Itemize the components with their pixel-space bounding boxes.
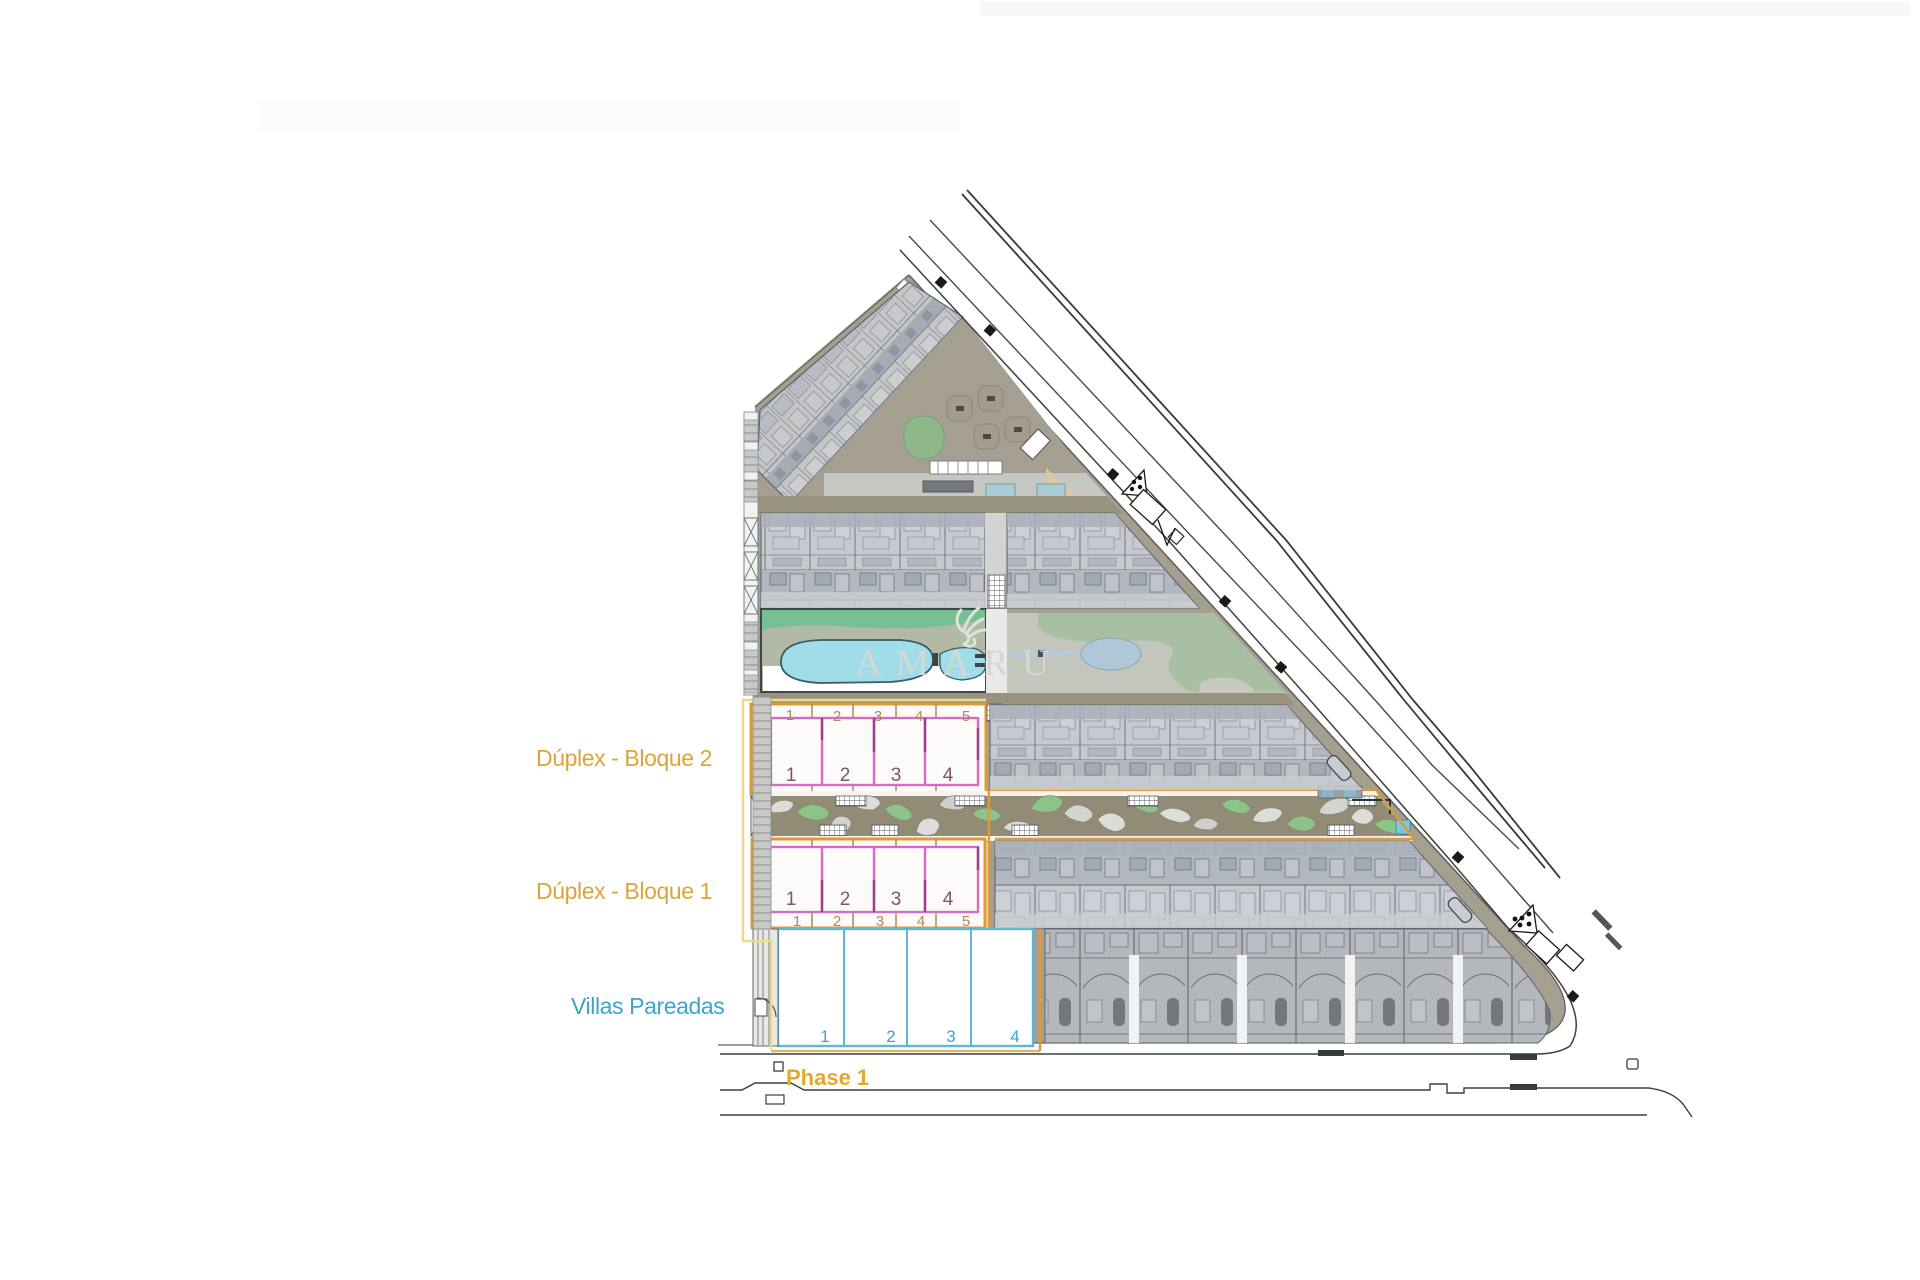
svg-text:3: 3 bbox=[891, 889, 902, 910]
svg-text:2: 2 bbox=[840, 889, 851, 910]
svg-text:5: 5 bbox=[962, 708, 970, 725]
svg-text:1: 1 bbox=[786, 765, 797, 786]
svg-text:1: 1 bbox=[820, 1027, 829, 1046]
svg-text:4: 4 bbox=[943, 889, 954, 910]
svg-text:AMARU: AMARU bbox=[855, 643, 1063, 684]
svg-text:1: 1 bbox=[786, 707, 794, 724]
svg-text:2: 2 bbox=[833, 913, 841, 930]
svg-text:4: 4 bbox=[1010, 1027, 1019, 1046]
svg-text:4: 4 bbox=[917, 913, 925, 930]
svg-text:Phase 1: Phase 1 bbox=[786, 1065, 869, 1090]
svg-text:5: 5 bbox=[962, 913, 970, 930]
svg-text:3: 3 bbox=[874, 708, 882, 725]
svg-text:3: 3 bbox=[891, 765, 902, 786]
svg-text:3: 3 bbox=[876, 913, 884, 930]
svg-text:Villas Pareadas: Villas Pareadas bbox=[571, 993, 724, 1019]
svg-text:Dúplex - Bloque 1: Dúplex - Bloque 1 bbox=[536, 878, 712, 904]
svg-text:2: 2 bbox=[840, 765, 851, 786]
svg-text:1: 1 bbox=[793, 913, 801, 930]
svg-text:4: 4 bbox=[915, 708, 923, 725]
svg-text:2: 2 bbox=[886, 1027, 895, 1046]
svg-text:1: 1 bbox=[786, 889, 797, 910]
svg-text:4: 4 bbox=[943, 765, 954, 786]
svg-text:Dúplex - Bloque 2: Dúplex - Bloque 2 bbox=[536, 745, 712, 771]
svg-text:2: 2 bbox=[833, 708, 841, 725]
svg-text:3: 3 bbox=[946, 1027, 955, 1046]
